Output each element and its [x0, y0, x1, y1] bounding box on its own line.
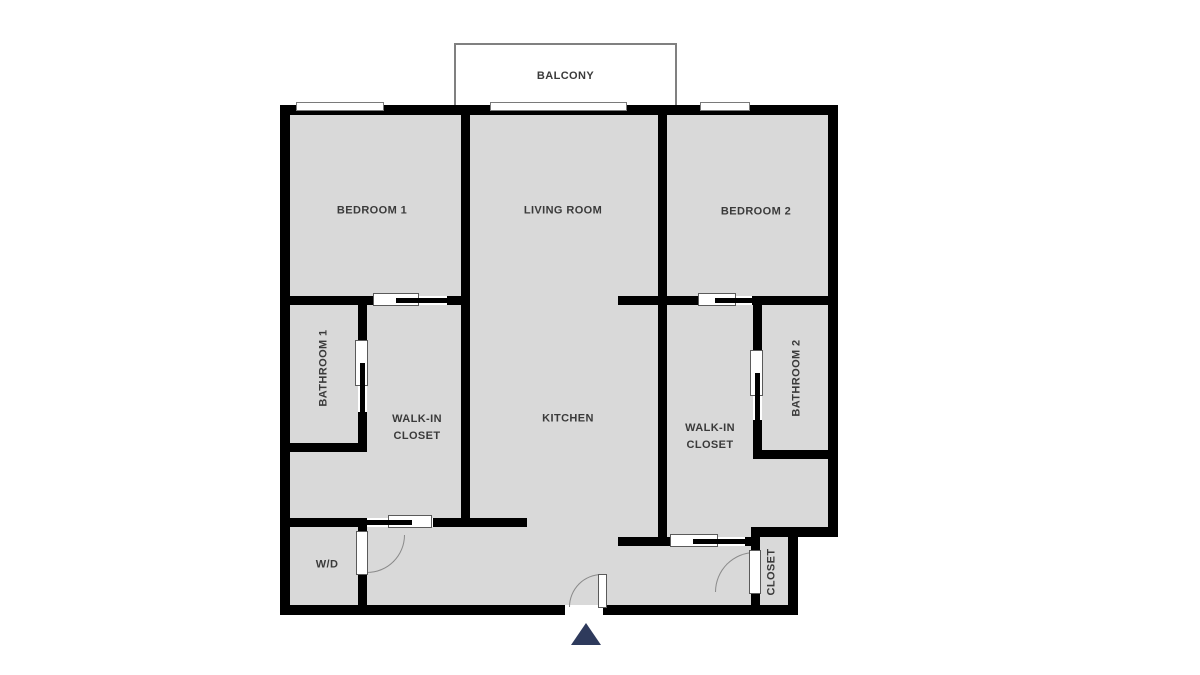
wall-bathroom2-bottom — [753, 450, 828, 459]
label-kitchen: KITCHEN — [542, 411, 594, 428]
door-leaf-entry — [598, 574, 607, 608]
label-bedroom2: BEDROOM 2 — [721, 204, 791, 221]
label-walk-in-closet2-line2: CLOSET — [685, 437, 735, 454]
label-wd: W/D — [316, 557, 339, 574]
door-leaf-closet — [749, 550, 761, 594]
sliding-door-bar — [715, 298, 753, 303]
sliding-door-bar — [367, 520, 412, 525]
sliding-door-bar — [693, 539, 745, 544]
window-bedroom2 — [700, 102, 750, 111]
label-closet: CLOSET — [764, 548, 781, 595]
entry-arrow — [571, 623, 601, 645]
label-living-room: LIVING ROOM — [524, 203, 602, 220]
label-walk-in-closet1-line2: CLOSET — [392, 428, 442, 445]
label-walk-in-closet1-line1: WALK-IN — [392, 411, 442, 428]
wall-kitchen-stub — [618, 296, 667, 305]
balcony-area: BALCONY — [454, 43, 677, 110]
wall-closet-cap — [751, 527, 838, 537]
wall-closet-right — [788, 537, 798, 605]
sliding-door-bar — [396, 298, 447, 303]
wall-bathroom1-bottom — [290, 443, 358, 452]
window-bedroom1 — [296, 102, 384, 111]
wall-exterior-left — [280, 105, 290, 615]
floor-plan-canvas: BALCONY — [0, 0, 1200, 675]
balcony-label: BALCONY — [537, 68, 594, 85]
label-bedroom1: BEDROOM 1 — [337, 203, 407, 220]
door-leaf-wd — [356, 531, 368, 575]
sliding-door-bar — [755, 373, 760, 420]
label-walk-in-closet2-line1: WALK-IN — [685, 420, 735, 437]
floor-plan: BALCONY — [0, 0, 1200, 675]
wall-exterior-bottom — [280, 605, 798, 615]
label-walk-in-closet1: WALK-IN CLOSET — [392, 411, 442, 445]
wall-exterior-right — [828, 105, 838, 533]
exterior-notch — [798, 533, 844, 615]
label-bathroom1: BATHROOM 1 — [316, 329, 333, 406]
wall-living-bedroom2 — [658, 115, 667, 546]
label-bathroom2: BATHROOM 2 — [789, 339, 806, 416]
sliding-door-bar — [360, 363, 365, 412]
label-walk-in-closet2: WALK-IN CLOSET — [685, 420, 735, 454]
window-living-room — [490, 102, 627, 111]
wall-bedroom1-living — [461, 115, 470, 527]
